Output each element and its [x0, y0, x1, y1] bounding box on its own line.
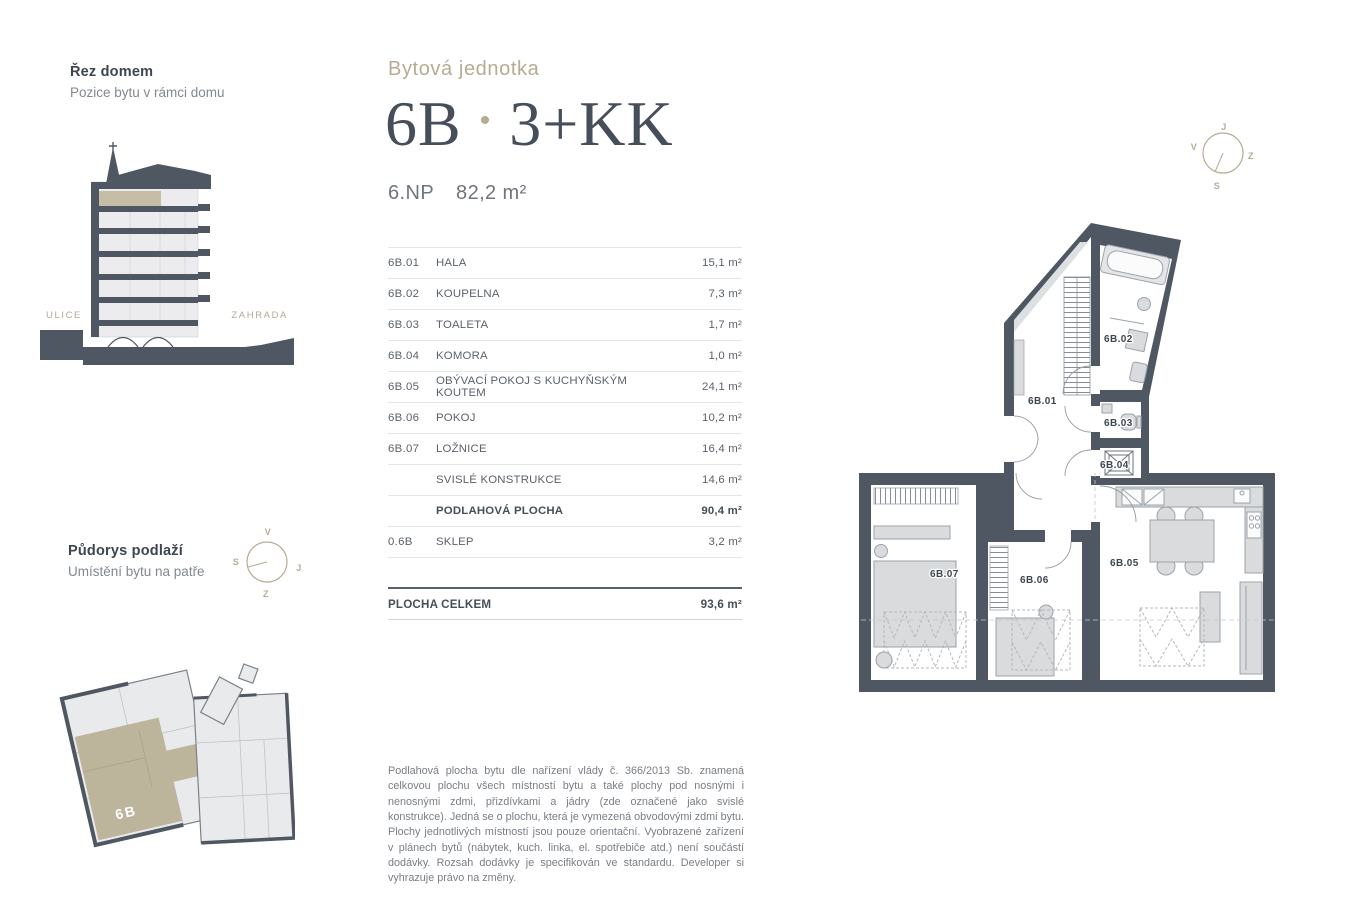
dining-table: [1150, 520, 1214, 562]
stair-hatch-strip: [1064, 277, 1090, 395]
compass-floor-left: S: [233, 557, 240, 567]
floor-overview-header: Půdorys podlaží Umístění bytu na patře: [68, 543, 205, 579]
table-row: 6B.06 POKOJ 10,2 m²: [388, 403, 742, 434]
room-label-storage: 6B.04: [1100, 460, 1129, 471]
unit-area: 82,2 m²: [456, 182, 527, 204]
table-row-floor-area: PODLAHOVÁ PLOCHA 90,4 m²: [388, 496, 742, 527]
table-row: 6B.05 OBÝVACÍ POKOJ S KUCHYŇSKÝM KOUTEM …: [388, 372, 742, 403]
apartment-floor-plan: 6B.01 6B.02 6B.03 6B.04 6B.05 6B.06 6B.0…: [848, 220, 1300, 702]
floor-overview-subtitle: Umístění bytu na patře: [68, 564, 205, 579]
compass-plan-icon: J V Z S: [1178, 112, 1268, 202]
table-row: 6B.01 HALA 15,1 m²: [388, 247, 742, 279]
compass-plan-top: J: [1221, 122, 1227, 132]
unit-floor: 6.NP: [388, 182, 434, 204]
building-body: [91, 142, 211, 347]
room-label-room: 6B.06: [1020, 575, 1049, 586]
church-spire: [106, 142, 121, 184]
floor-overview-title: Půdorys podlaží: [68, 543, 205, 559]
compass-floor-right: J: [296, 563, 302, 573]
sofa: [1240, 582, 1262, 674]
unit-layout: 3+KK: [509, 88, 674, 159]
room-label-bathroom: 6B.02: [1104, 334, 1133, 345]
unit-title: 6B•3+KK: [385, 92, 674, 156]
room-label-living: 6B.05: [1110, 558, 1139, 569]
table-row: 6B.07 LOŽNICE 16,4 m²: [388, 434, 742, 465]
washbasin: [1138, 298, 1151, 311]
table-row: 6B.03 TOALETA 1,7 m²: [388, 310, 742, 341]
unit-floor-area: 6.NP 82,2 m²: [388, 182, 543, 205]
section-view-subtitle: Pozice bytu v rámci domu: [70, 85, 225, 100]
section-view-title: Řez domem: [70, 64, 225, 80]
table-row: 6B.04 KOMORA 1,0 m²: [388, 341, 742, 372]
room-label-bedroom: 6B.07: [930, 569, 959, 580]
table-row: 0.6B SKLEP 3,2 m²: [388, 527, 742, 558]
compass-plan-bottom: S: [1214, 181, 1221, 191]
toilet-bowl: [1129, 362, 1148, 384]
table-row: SVISLÉ KONSTRUKCE 14,6 m²: [388, 465, 742, 496]
disclaimer-text: Podlahová plocha bytu dle nařízení vlády…: [388, 764, 744, 887]
highlighted-floor: [99, 191, 161, 206]
unit-eyebrow: Bytová jednotka: [388, 58, 539, 81]
street-label: ULICE: [46, 310, 82, 321]
compass-floor-top: V: [265, 527, 272, 537]
compass-floor-icon: V S J Z: [222, 517, 312, 607]
compass-floor-bottom: Z: [263, 589, 269, 599]
table-row: 6B.02 KOUPELNA 7,3 m²: [388, 279, 742, 310]
room-label-hall: 6B.01: [1028, 396, 1057, 407]
stove: [1247, 512, 1261, 538]
unit-code: 6B: [385, 88, 462, 159]
hall-closet: [1014, 340, 1024, 395]
compass-plan-left: V: [1191, 142, 1198, 152]
building-section-header: Řez domem Pozice bytu v rámci domu: [70, 64, 225, 100]
garden-label: ZAHRADA: [231, 310, 288, 321]
unit-separator-dot: •: [480, 106, 492, 136]
floor-overview-plan: 6B: [45, 636, 295, 858]
roof: [118, 164, 195, 182]
rooms-table: 6B.01 HALA 15,1 m² 6B.02 KOUPELNA 7,3 m²…: [388, 247, 742, 620]
room-label-wc: 6B.03: [1104, 418, 1133, 429]
building-section-drawing: ULICE ZAHRADA: [38, 142, 296, 372]
table-total-row: PLOCHA CELKEM 93,6 m²: [388, 587, 742, 620]
compass-plan-right: Z: [1248, 151, 1254, 161]
